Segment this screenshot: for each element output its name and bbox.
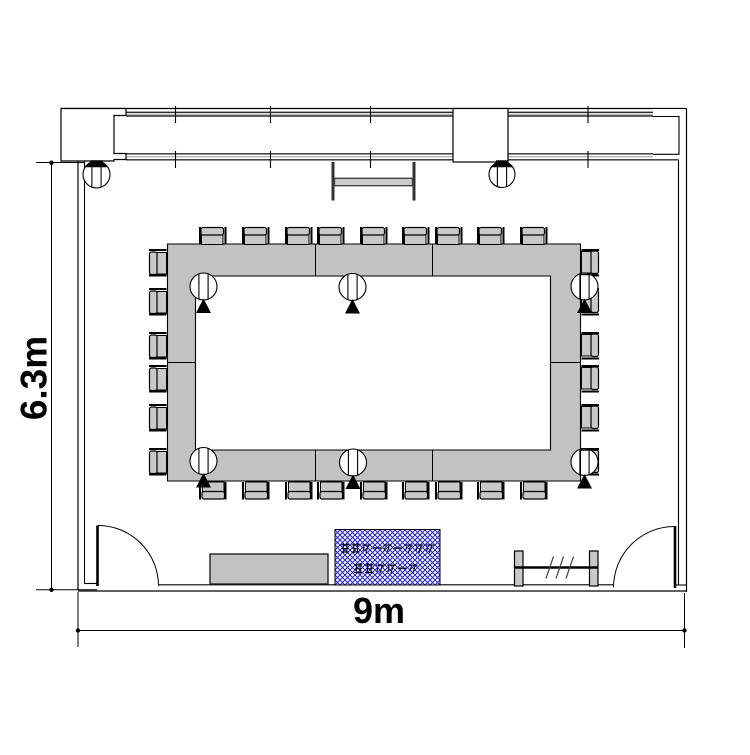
svg-text:9m: 9m	[353, 590, 405, 631]
svg-text:6.3m: 6.3m	[14, 336, 55, 420]
